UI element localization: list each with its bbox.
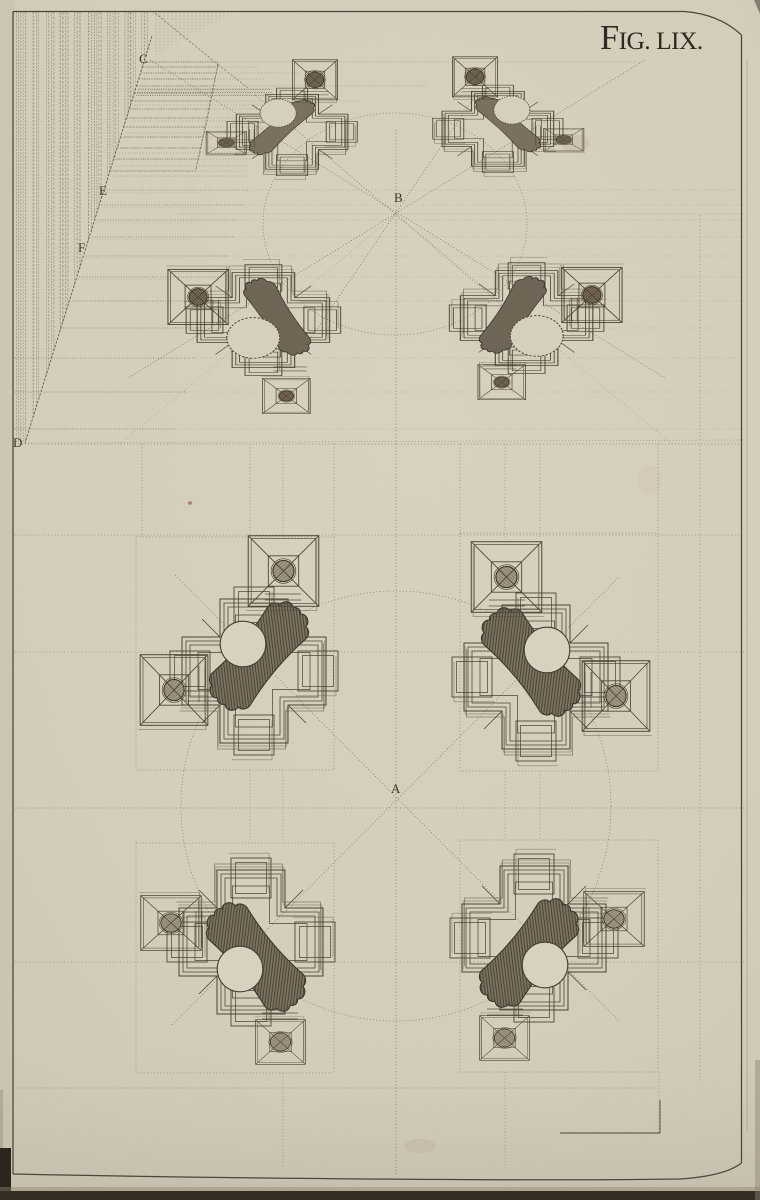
svg-text:D: D — [13, 435, 22, 450]
svg-text:A: A — [391, 781, 401, 796]
svg-text:B: B — [394, 190, 403, 205]
svg-text:C: C — [139, 51, 148, 66]
svg-text:E: E — [99, 183, 107, 198]
svg-text:F: F — [78, 240, 85, 255]
